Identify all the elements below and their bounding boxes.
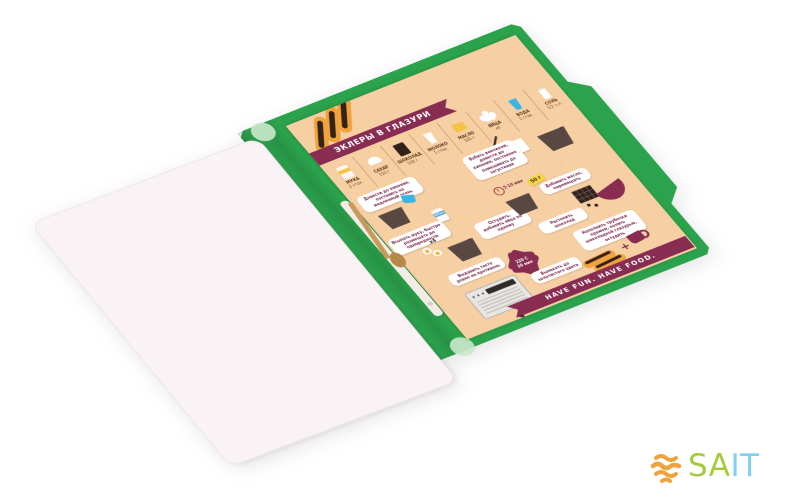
measuring-cup-icon bbox=[400, 194, 416, 203]
sait-logo-text: SAIT bbox=[688, 448, 760, 484]
sait-logo: SAIT bbox=[648, 448, 760, 484]
product-photo-stage: ЭКЛЕРЫ В ГЛАЗУРИ МУКА 2 стак. САХАР 150 … bbox=[0, 0, 787, 500]
sait-logo-waves-icon bbox=[648, 448, 684, 484]
chocolate-crumb-icon bbox=[587, 204, 591, 207]
oven-knobs bbox=[472, 292, 486, 299]
flour-pack-label: МУКА bbox=[433, 210, 446, 217]
logo-sa: SA bbox=[688, 448, 730, 484]
chocolate-crumb-icon bbox=[594, 204, 598, 207]
logo-it: IT bbox=[730, 448, 759, 484]
